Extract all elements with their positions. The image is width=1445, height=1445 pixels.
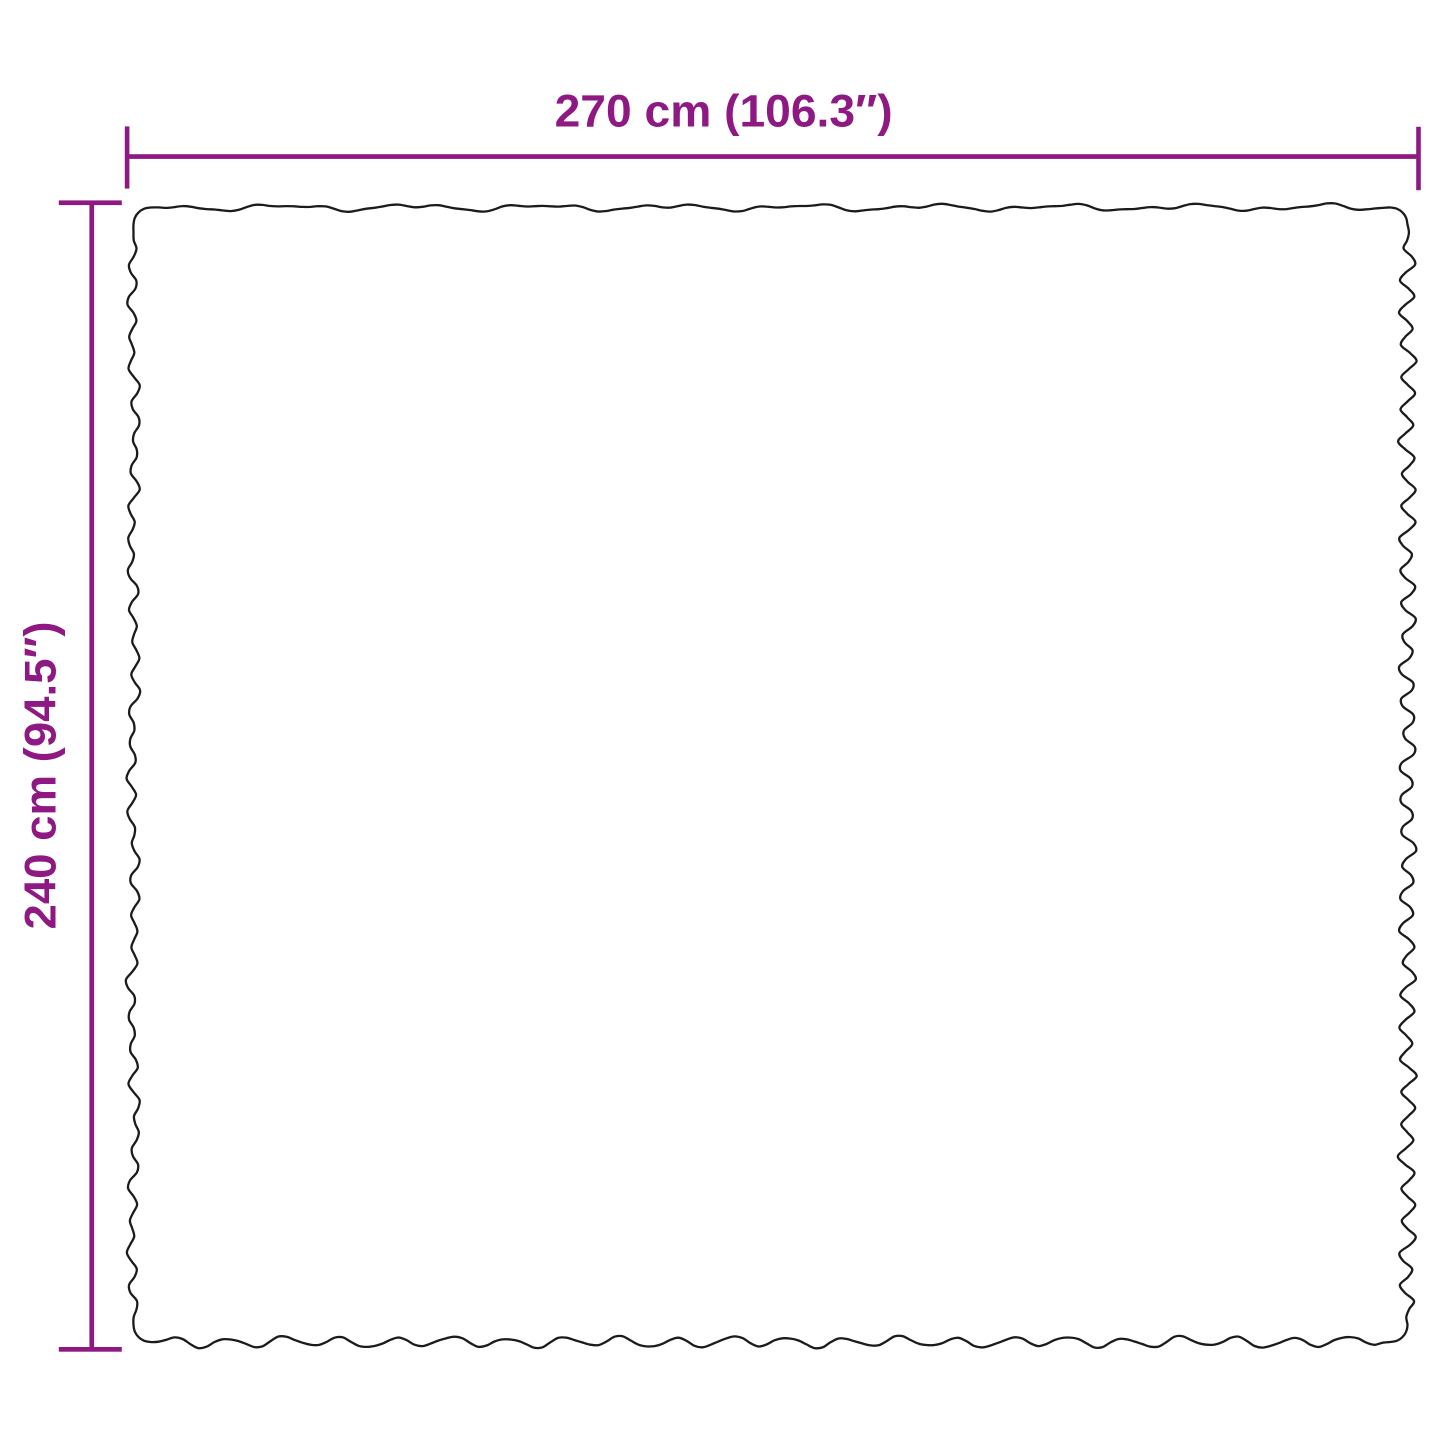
svg-text:240 cm (94.5″): 240 cm (94.5″) [15,622,65,930]
svg-text:270 cm (106.3″): 270 cm (106.3″) [555,85,893,136]
